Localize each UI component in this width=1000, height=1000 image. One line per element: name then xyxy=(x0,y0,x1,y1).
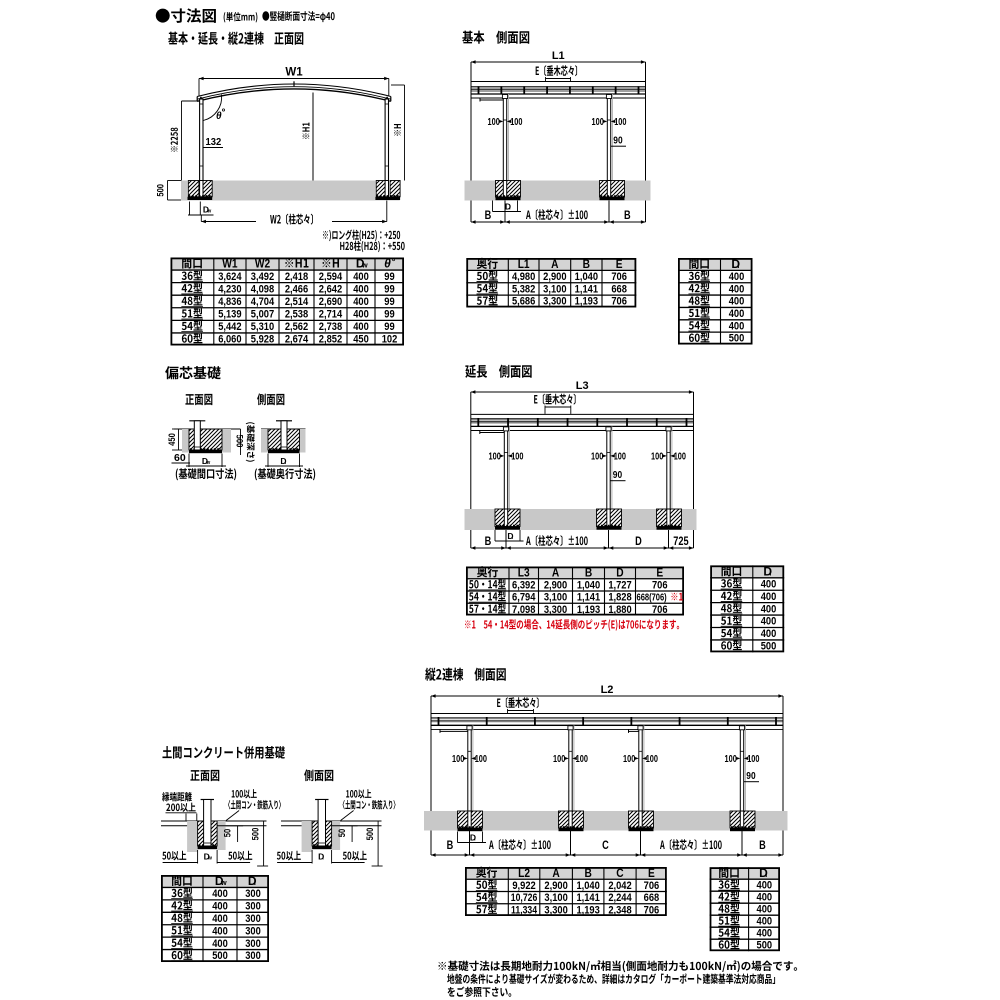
svg-text:450: 450 xyxy=(166,433,177,446)
svg-text:A: A xyxy=(552,867,559,880)
svg-text:300: 300 xyxy=(245,901,261,913)
svg-text:4,704: 4,704 xyxy=(251,296,275,308)
svg-text:1,880: 1,880 xyxy=(608,604,632,616)
svg-text:300: 300 xyxy=(245,951,261,963)
svg-text:1,040: 1,040 xyxy=(577,580,601,592)
svg-text:300: 300 xyxy=(245,926,261,938)
svg-text:300: 300 xyxy=(245,938,261,950)
svg-text:θ: θ xyxy=(216,111,222,122)
svg-text:4,098: 4,098 xyxy=(251,284,275,296)
svg-text:500: 500 xyxy=(250,827,261,840)
svg-text:L1: L1 xyxy=(552,50,565,62)
svg-text:4,836: 4,836 xyxy=(218,296,242,308)
svg-text:100: 100 xyxy=(674,450,686,462)
svg-text:5,007: 5,007 xyxy=(251,309,275,321)
svg-text:1,193: 1,193 xyxy=(576,905,600,917)
svg-text:7,098: 7,098 xyxy=(512,604,536,616)
svg-text:99: 99 xyxy=(384,321,395,333)
svg-text:2,538: 2,538 xyxy=(285,309,309,321)
svg-text:θ: θ xyxy=(384,257,391,271)
svg-text:B: B xyxy=(485,210,492,222)
svg-text:668: 668 xyxy=(644,892,660,904)
svg-text:100: 100 xyxy=(489,450,501,462)
svg-text:100: 100 xyxy=(592,116,604,128)
svg-text:100: 100 xyxy=(623,753,635,765)
svg-text:400: 400 xyxy=(729,271,745,283)
svg-text:5,928: 5,928 xyxy=(251,334,275,346)
svg-text:2,900: 2,900 xyxy=(543,271,567,283)
svg-text:W1: W1 xyxy=(285,67,303,79)
svg-text:3,100: 3,100 xyxy=(543,284,567,296)
svg-text:99: 99 xyxy=(384,271,395,283)
svg-text:100: 100 xyxy=(488,116,500,128)
svg-text:l: l xyxy=(254,878,256,887)
svg-text:1,193: 1,193 xyxy=(577,604,601,616)
svg-text:l: l xyxy=(769,568,771,577)
svg-text:400: 400 xyxy=(353,296,369,308)
svg-text:100: 100 xyxy=(614,116,626,128)
svg-text:w: w xyxy=(220,878,227,887)
svg-text:D: D xyxy=(616,567,623,580)
svg-text:1,040: 1,040 xyxy=(576,880,600,892)
svg-text:1,141: 1,141 xyxy=(576,892,600,904)
svg-text:102: 102 xyxy=(382,334,398,346)
svg-text:L2: L2 xyxy=(518,867,530,880)
svg-text:400: 400 xyxy=(212,913,228,925)
svg-text:100: 100 xyxy=(747,753,759,765)
svg-text:100: 100 xyxy=(591,450,603,462)
svg-text:B: B xyxy=(624,210,631,222)
svg-text:706: 706 xyxy=(611,271,627,283)
svg-text:400: 400 xyxy=(212,938,228,950)
svg-text:B: B xyxy=(759,840,766,852)
svg-text:5,442: 5,442 xyxy=(218,321,242,333)
svg-text:4,230: 4,230 xyxy=(218,284,242,296)
svg-text:100: 100 xyxy=(576,753,588,765)
svg-text:W1: W1 xyxy=(222,258,237,271)
svg-text:100: 100 xyxy=(452,753,464,765)
svg-text:2,348: 2,348 xyxy=(608,905,632,917)
svg-text:100: 100 xyxy=(553,753,565,765)
svg-text:100: 100 xyxy=(614,450,626,462)
svg-text:B: B xyxy=(584,867,591,880)
svg-text:2,514: 2,514 xyxy=(285,296,309,308)
svg-text:706: 706 xyxy=(652,580,668,592)
svg-text:1,727: 1,727 xyxy=(608,580,632,592)
svg-text:90: 90 xyxy=(613,135,622,147)
svg-text:A: A xyxy=(551,258,558,271)
svg-text:w: w xyxy=(206,209,212,215)
svg-text:C: C xyxy=(616,867,623,880)
svg-text:500: 500 xyxy=(729,333,745,345)
svg-text:400: 400 xyxy=(729,296,745,308)
svg-text:2,900: 2,900 xyxy=(544,880,568,892)
svg-text:100: 100 xyxy=(475,753,487,765)
svg-text:100: 100 xyxy=(646,753,658,765)
svg-text:B: B xyxy=(583,258,590,271)
svg-text:2,466: 2,466 xyxy=(285,284,309,296)
svg-text:3,300: 3,300 xyxy=(544,604,568,616)
svg-text:w: w xyxy=(361,261,368,270)
svg-text:500: 500 xyxy=(155,184,166,197)
svg-text:°: ° xyxy=(392,257,396,268)
svg-text:400: 400 xyxy=(212,926,228,938)
svg-text:50: 50 xyxy=(222,829,233,838)
svg-text:6,392: 6,392 xyxy=(512,580,536,592)
svg-text:B: B xyxy=(485,536,492,548)
svg-text:100: 100 xyxy=(510,116,522,128)
svg-text:100: 100 xyxy=(725,753,737,765)
svg-text:1,828: 1,828 xyxy=(608,592,632,604)
svg-text:99: 99 xyxy=(384,296,395,308)
svg-text:400: 400 xyxy=(757,916,773,928)
svg-text:1,141: 1,141 xyxy=(575,284,599,296)
svg-text:60: 60 xyxy=(174,452,186,464)
svg-text:E: E xyxy=(648,867,655,880)
svg-text:C: C xyxy=(602,840,609,852)
svg-text:668: 668 xyxy=(611,284,627,296)
svg-text:2,714: 2,714 xyxy=(319,309,343,321)
svg-text:D: D xyxy=(635,536,642,548)
svg-text:w: w xyxy=(205,460,211,466)
svg-text:706: 706 xyxy=(611,296,627,308)
svg-text:400: 400 xyxy=(757,892,773,904)
svg-text:500: 500 xyxy=(761,641,777,653)
svg-text:500: 500 xyxy=(234,435,245,448)
svg-text:E: E xyxy=(656,567,663,580)
svg-text:L3: L3 xyxy=(576,380,589,392)
svg-text:300: 300 xyxy=(245,913,261,925)
svg-text:3,624: 3,624 xyxy=(218,271,242,283)
svg-text:450: 450 xyxy=(353,334,369,346)
svg-text:400: 400 xyxy=(729,321,745,333)
svg-text:4,980: 4,980 xyxy=(512,271,536,283)
svg-text:400: 400 xyxy=(729,284,745,296)
svg-text:3,492: 3,492 xyxy=(251,271,275,283)
svg-text:1,193: 1,193 xyxy=(575,296,599,308)
svg-text:90: 90 xyxy=(746,770,755,782)
svg-text:1,141: 1,141 xyxy=(577,592,601,604)
svg-text:400: 400 xyxy=(757,904,773,916)
svg-text:706: 706 xyxy=(652,604,668,616)
svg-text:500: 500 xyxy=(212,951,228,963)
svg-text:L3: L3 xyxy=(518,567,530,580)
svg-text:3,100: 3,100 xyxy=(544,892,568,904)
svg-text:2,594: 2,594 xyxy=(319,271,343,283)
svg-text:668(706): 668(706) xyxy=(637,591,667,602)
svg-text:9,922: 9,922 xyxy=(512,880,536,892)
svg-text:11,334: 11,334 xyxy=(511,904,537,916)
svg-text:5,686: 5,686 xyxy=(512,296,536,308)
svg-text:400: 400 xyxy=(761,591,777,603)
svg-text:B: B xyxy=(585,567,592,580)
svg-text:400: 400 xyxy=(353,321,369,333)
svg-text:2,642: 2,642 xyxy=(319,284,343,296)
svg-text:400: 400 xyxy=(761,628,777,640)
svg-text:2,674: 2,674 xyxy=(285,334,309,346)
svg-text:A: A xyxy=(552,567,559,580)
svg-text:99: 99 xyxy=(384,284,395,296)
svg-text:10,726: 10,726 xyxy=(511,892,538,904)
svg-text:L1: L1 xyxy=(518,258,530,271)
svg-text:500: 500 xyxy=(757,940,773,952)
svg-text:90: 90 xyxy=(613,469,622,481)
svg-text:2,852: 2,852 xyxy=(319,334,343,346)
svg-text:w: w xyxy=(207,856,213,862)
svg-text:706: 706 xyxy=(644,905,660,917)
svg-text:400: 400 xyxy=(757,880,773,892)
svg-text:6,060: 6,060 xyxy=(218,334,242,346)
svg-text:400: 400 xyxy=(353,284,369,296)
svg-text:99: 99 xyxy=(384,309,395,321)
svg-text:2,900: 2,900 xyxy=(544,580,568,592)
svg-text:2,738: 2,738 xyxy=(319,321,343,333)
svg-text:B: B xyxy=(447,840,454,852)
svg-text:3,300: 3,300 xyxy=(543,296,567,308)
svg-text:L2: L2 xyxy=(601,684,614,696)
svg-text:400: 400 xyxy=(757,928,773,940)
svg-text:100: 100 xyxy=(651,450,663,462)
svg-text:500: 500 xyxy=(364,827,375,840)
svg-text:2,418: 2,418 xyxy=(285,271,309,283)
svg-text:300: 300 xyxy=(245,888,261,900)
svg-text:400: 400 xyxy=(761,579,777,591)
svg-text:2,562: 2,562 xyxy=(285,321,309,333)
svg-text:400: 400 xyxy=(729,308,745,320)
svg-text:132: 132 xyxy=(206,137,222,149)
svg-text:1,040: 1,040 xyxy=(575,271,599,283)
svg-text:5,382: 5,382 xyxy=(512,284,536,296)
svg-text:725: 725 xyxy=(673,536,689,548)
svg-text:5,310: 5,310 xyxy=(251,321,275,333)
svg-text:2,042: 2,042 xyxy=(608,880,632,892)
svg-text:400: 400 xyxy=(212,888,228,900)
svg-text:400: 400 xyxy=(761,616,777,628)
svg-text:706: 706 xyxy=(644,880,660,892)
svg-text:l: l xyxy=(765,870,767,879)
svg-text:400: 400 xyxy=(353,271,369,283)
svg-text:2,244: 2,244 xyxy=(608,892,632,904)
svg-text:100: 100 xyxy=(511,450,523,462)
svg-text:W2: W2 xyxy=(255,258,270,271)
svg-text:50: 50 xyxy=(336,829,347,838)
svg-text:400: 400 xyxy=(353,309,369,321)
svg-text:6,794: 6,794 xyxy=(512,592,536,604)
svg-text:5,139: 5,139 xyxy=(218,309,242,321)
svg-text:400: 400 xyxy=(761,604,777,616)
svg-text:E: E xyxy=(616,258,623,271)
svg-text:3,100: 3,100 xyxy=(544,592,568,604)
svg-text:2,690: 2,690 xyxy=(319,296,343,308)
svg-text:3,300: 3,300 xyxy=(544,905,568,917)
svg-text:400: 400 xyxy=(212,901,228,913)
svg-text:l: l xyxy=(737,261,739,270)
